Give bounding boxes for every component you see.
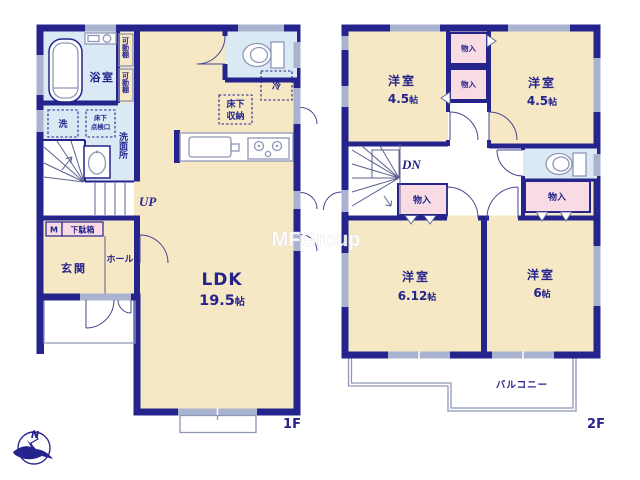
floor-label-2f: 2F [587,417,605,432]
window-icon [390,25,440,32]
underfloor-hatch-label-2: 点検口 [91,122,111,131]
window-icon [238,25,284,32]
washer-label: 洗 [58,118,67,130]
bath-counter-icon [85,33,116,44]
closet-top-1-label: 物入 [461,43,476,53]
window-icon [37,110,44,132]
bathroom-label: 浴室 [90,70,115,84]
movable-shelf-label-bottom: 可動棚 [122,72,130,94]
window-icon [342,253,349,307]
fridge-label: 冷 [272,80,281,92]
entrance-label: 玄関 [61,261,87,275]
window-icon [594,58,601,112]
closet-hall-right-label: 物入 [548,191,566,203]
window-icon [294,42,301,68]
watermark: MFGroup [272,229,361,251]
movable-shelf-label-top: 可動棚 [122,37,130,59]
hall-label: ホール [106,254,133,265]
bedroom2-label: 洋室 [528,75,556,90]
underfloor-storage-label-2: 収納 [226,110,244,122]
underfloor-storage-label-1: 床下 [226,98,244,110]
window-icon [294,88,301,106]
bedroom4-label: 洋室 [527,267,555,282]
entrance-porch [44,294,135,344]
compass-icon: N [13,430,53,464]
stairs-down-label: DN [401,157,421,172]
floor-plan-2f: 洋室 4.5帖 洋室 4.5帖 洋室 6.12帖 洋室 6帖 物入 物入 物入 … [324,25,605,433]
kitchen-counter-icon [180,133,293,161]
window-icon [342,86,349,107]
window-icon [508,25,570,32]
washstand-icon [84,146,110,178]
closet-hall-left-label: 物入 [413,194,431,206]
shoebox-label: 下駄箱 [71,225,95,235]
floor-plan-canvas: 浴室 洗面所 洗 床下 点検口 可動棚 可動棚 冷 床下 収納 LDK 19.5… [0,0,640,480]
ldk-label: LDK [201,270,242,290]
hallway-strip-floor [448,102,489,147]
stairs-up-label: UP [139,194,157,209]
balcony-label: バルコニー [496,379,548,391]
window-icon [37,55,44,95]
toilet-1f-icon [243,42,284,68]
bedroom3-label: 洋室 [402,269,430,284]
bedroom1-label: 洋室 [388,73,416,88]
closet-top-2-label: 物入 [461,79,476,89]
toilet-2f-icon [546,153,586,176]
window-icon [594,154,601,176]
window-icon [594,246,601,306]
deck-step [180,416,256,433]
underfloor-hatch-label-1: 床下 [94,113,108,122]
window-icon [342,36,349,50]
meter-label: M [50,226,58,235]
floor-plan-page: 浴室 洗面所 洗 床下 点検口 可動棚 可動棚 冷 床下 収納 LDK 19.5… [0,0,640,480]
floor-label-1f: 1F [283,417,301,432]
washroom-label: 洗面所 [117,131,128,160]
bathtub-icon [49,39,82,102]
window-icon [85,25,116,32]
front-door-icon [80,294,131,301]
